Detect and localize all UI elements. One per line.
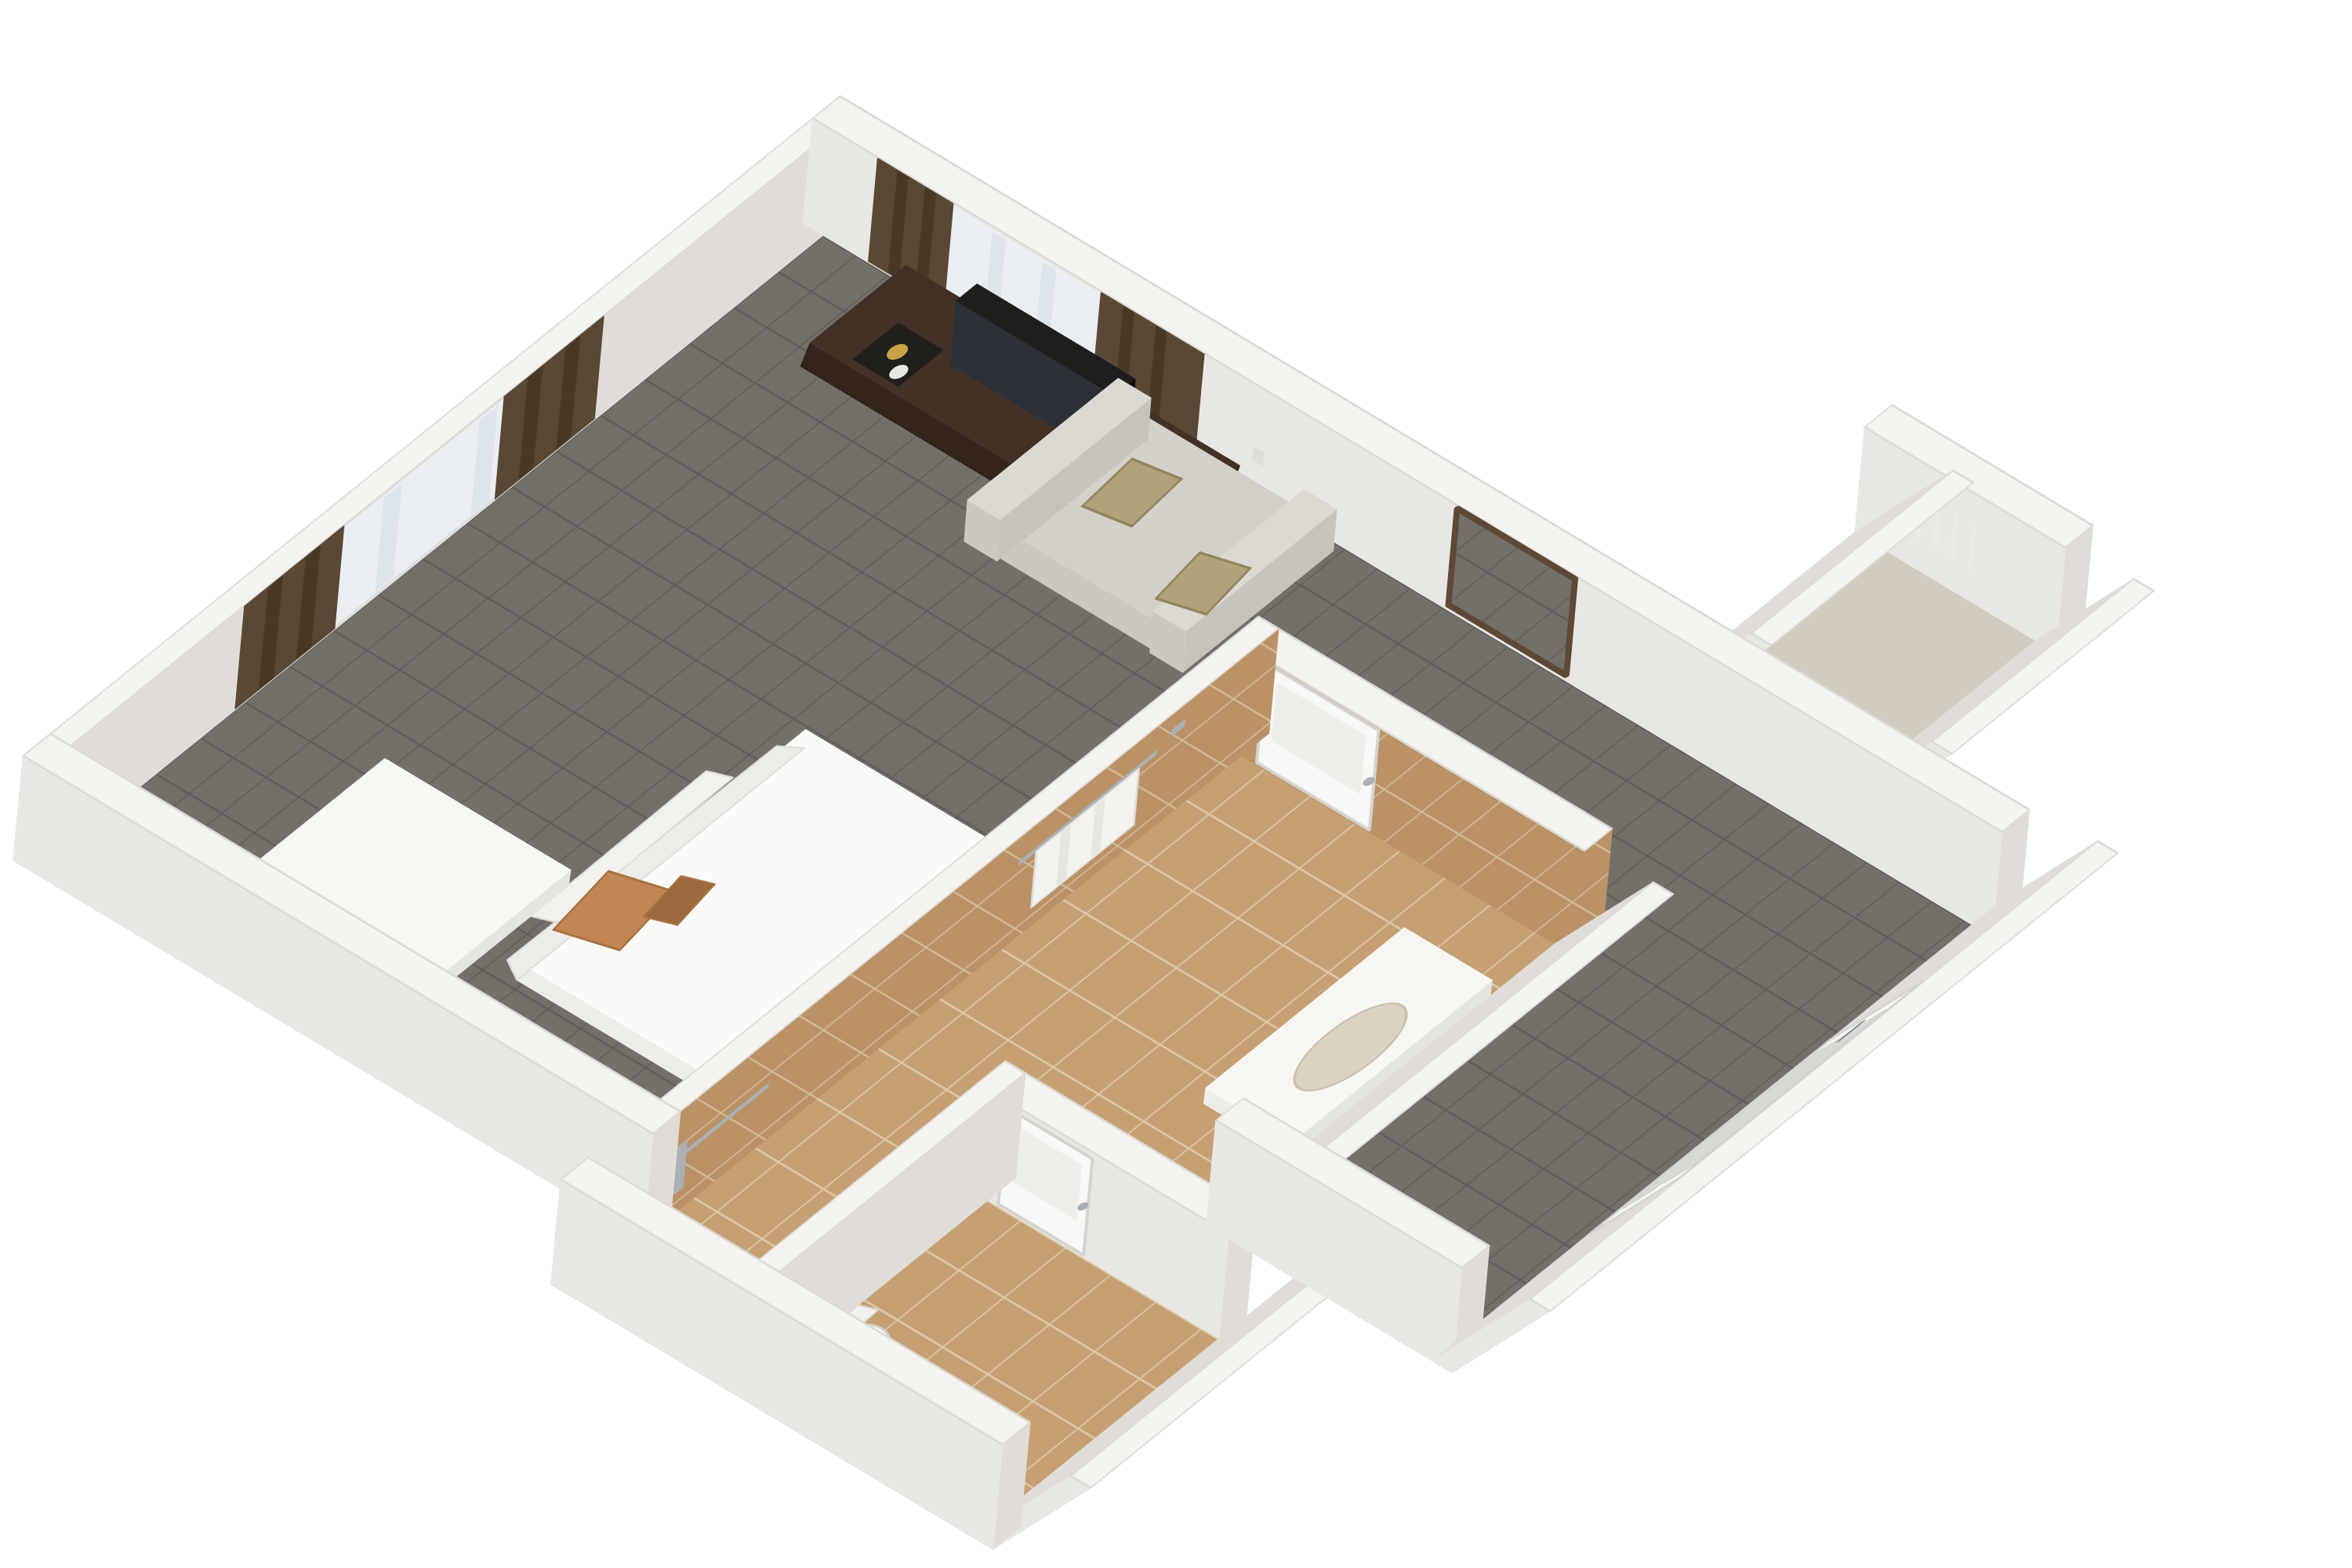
floor-plan-render bbox=[0, 0, 2352, 1568]
floor-plan-3d bbox=[0, 0, 2352, 1568]
floor-plan-scene bbox=[0, 0, 2339, 1568]
page bbox=[0, 0, 2352, 1568]
